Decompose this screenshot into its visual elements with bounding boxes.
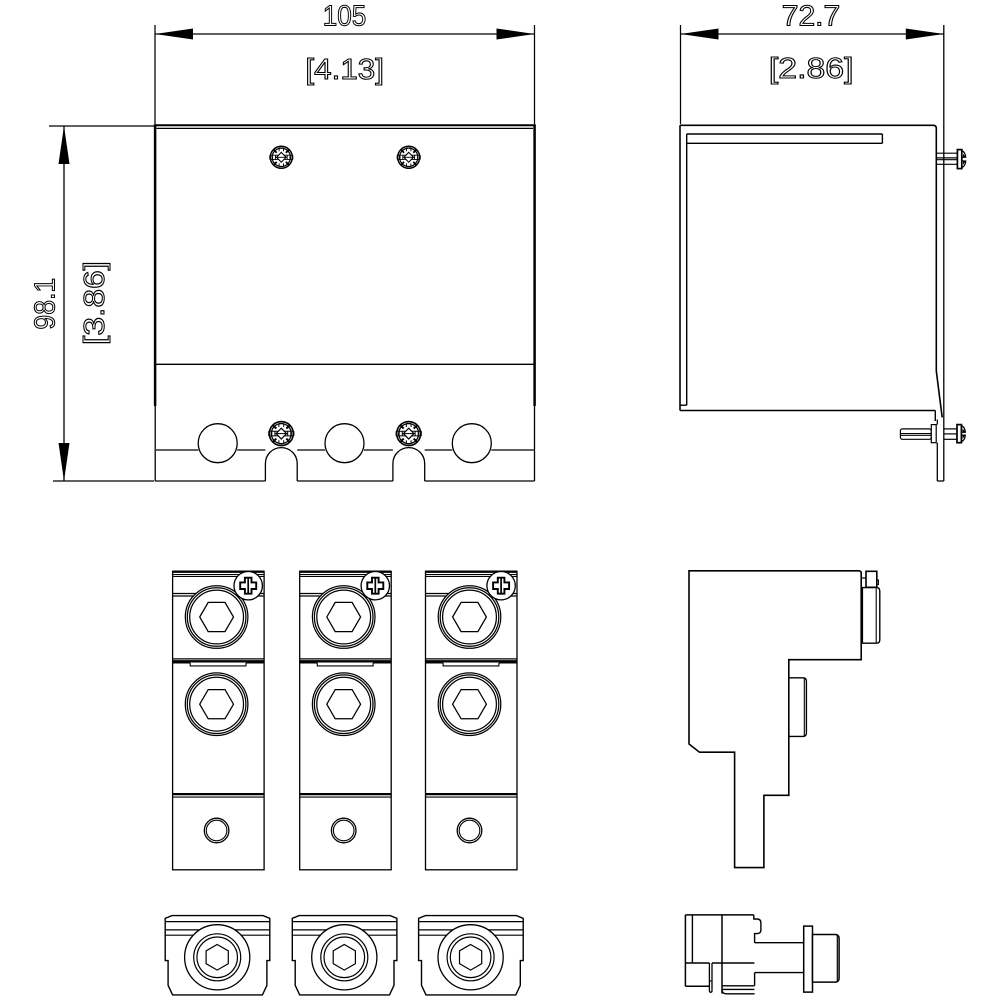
svg-text:[2.86]: [2.86]: [769, 53, 854, 85]
svg-text:98.1: 98.1: [29, 278, 61, 330]
svg-text:72.7: 72.7: [782, 0, 841, 32]
svg-text:[4.13]: [4.13]: [305, 54, 384, 86]
svg-text:105: 105: [323, 1, 367, 33]
svg-text:[3.86]: [3.86]: [79, 261, 111, 345]
